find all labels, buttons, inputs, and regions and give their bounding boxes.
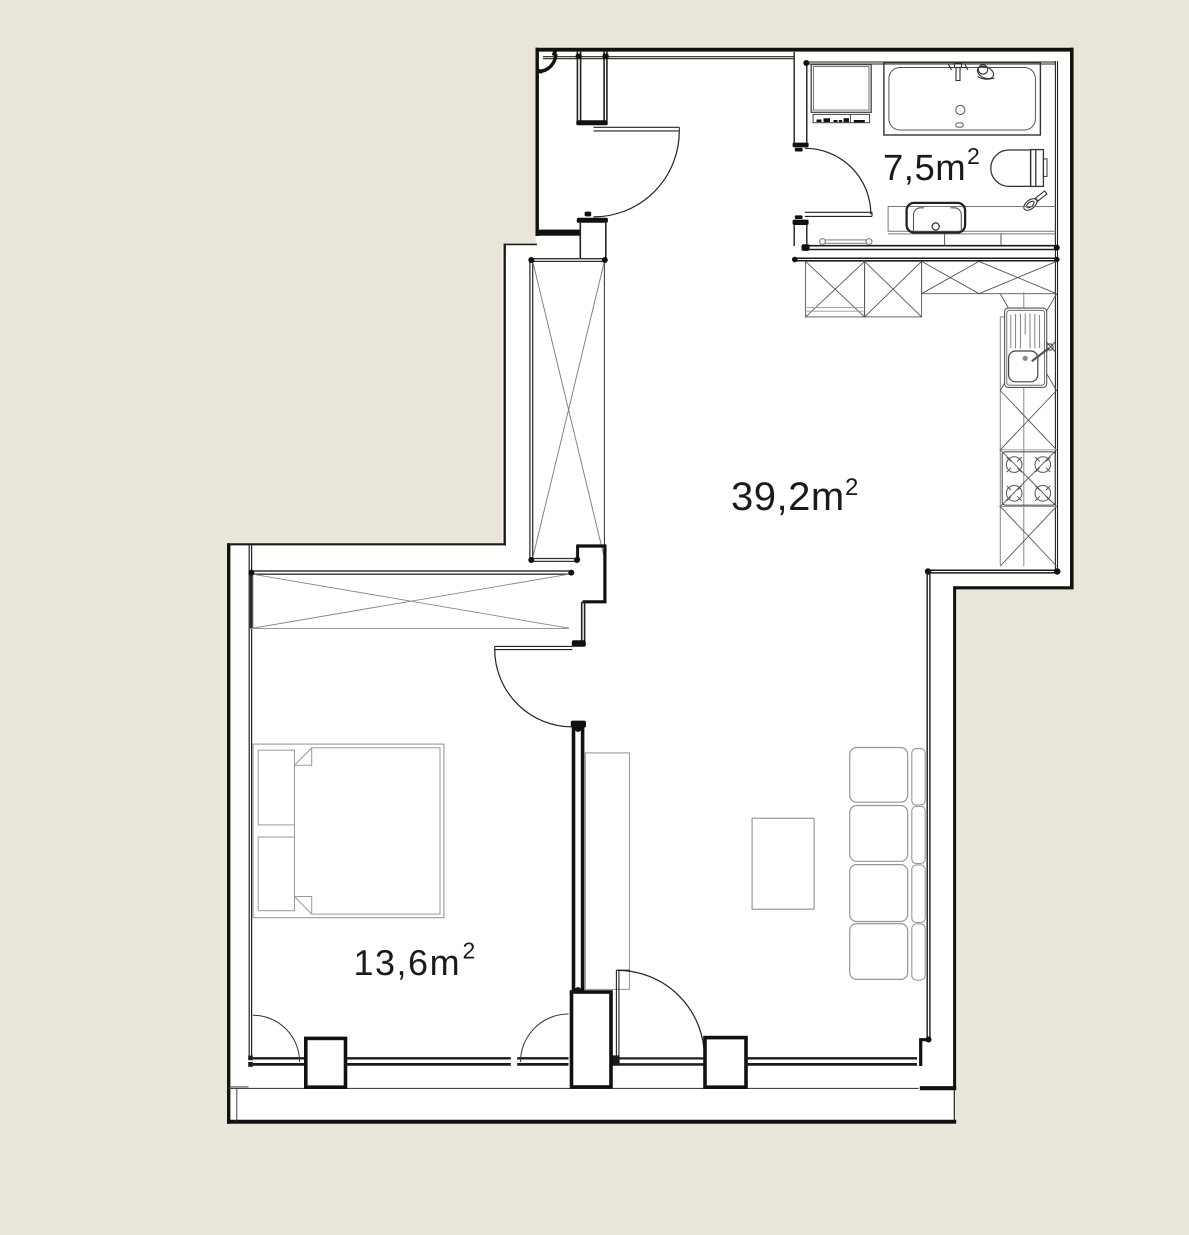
svg-text:2: 2	[845, 474, 858, 501]
svg-text:2: 2	[967, 143, 980, 169]
svg-text:39,2m: 39,2m	[731, 475, 845, 519]
svg-text:13,6m: 13,6m	[354, 942, 462, 983]
svg-text:2: 2	[463, 938, 476, 964]
svg-text:7,5m: 7,5m	[883, 147, 966, 188]
